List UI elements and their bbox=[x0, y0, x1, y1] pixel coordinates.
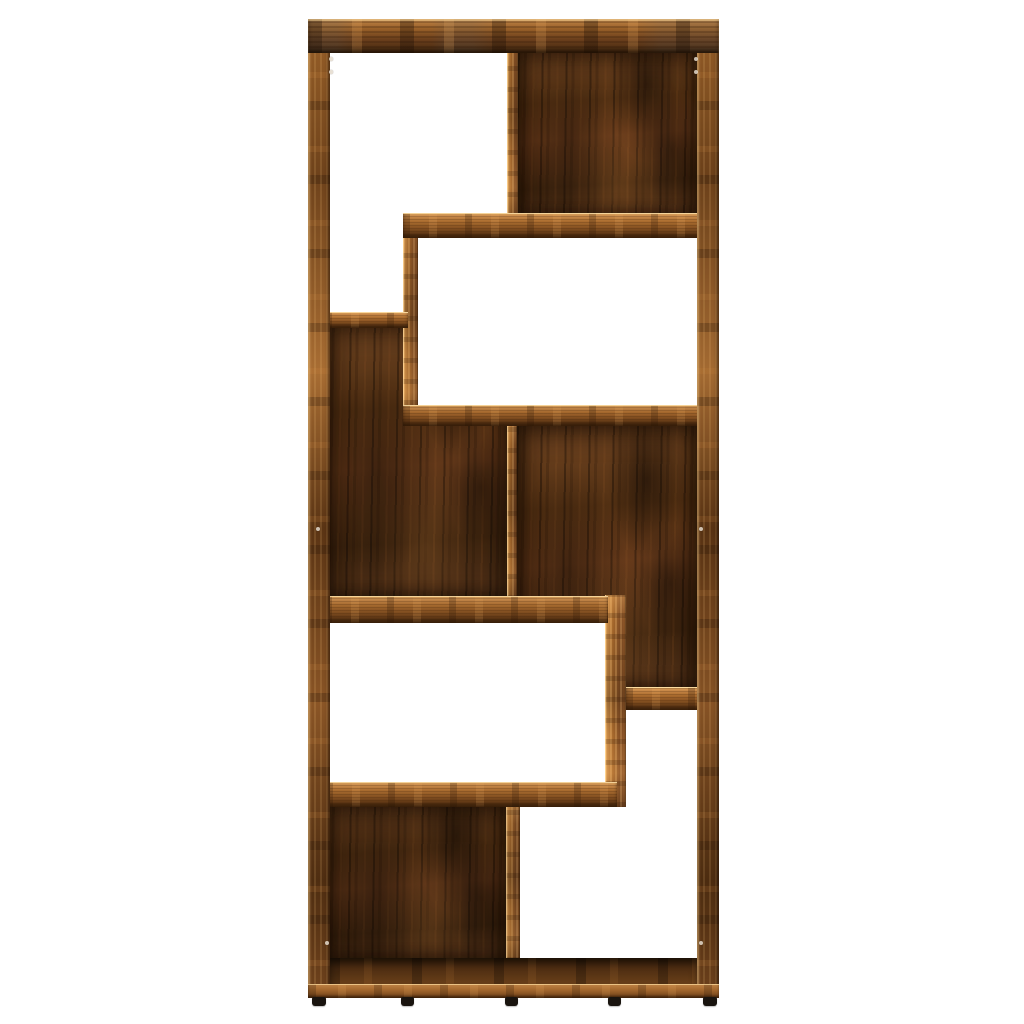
bottom-board-floor bbox=[330, 958, 697, 987]
fitting-dot-6 bbox=[699, 527, 703, 531]
shelf-upper bbox=[403, 213, 719, 238]
divider-right-step bbox=[605, 595, 626, 807]
frame-bottom-edge bbox=[308, 984, 719, 998]
shelf-lower bbox=[326, 782, 617, 807]
shelf-middle bbox=[325, 596, 608, 623]
back-panel-top-right bbox=[518, 46, 698, 218]
opening-below-middle-shelf bbox=[515, 623, 608, 700]
fitting-dot-4 bbox=[694, 70, 698, 74]
divider-bottom bbox=[506, 805, 520, 962]
product-photo bbox=[0, 0, 1024, 1024]
foot-5 bbox=[703, 997, 717, 1006]
frame-left-side bbox=[308, 19, 330, 998]
fitting-dot-5 bbox=[316, 527, 320, 531]
fitting-dot-1 bbox=[329, 57, 333, 61]
foot-4 bbox=[608, 997, 621, 1006]
fitting-dot-2 bbox=[329, 70, 333, 74]
shelf-middle-box-bottom bbox=[403, 405, 719, 426]
fitting-dot-7 bbox=[325, 941, 329, 945]
shelf-left-small bbox=[325, 312, 408, 328]
fitting-dot-8 bbox=[699, 941, 703, 945]
divider-middle bbox=[507, 424, 517, 600]
opening-middle-box-interior bbox=[416, 238, 702, 406]
divider-top bbox=[507, 27, 518, 218]
back-panel-bottom-left bbox=[326, 800, 507, 962]
foot-2 bbox=[401, 997, 414, 1006]
frame-right-side bbox=[697, 19, 719, 998]
frame-top-board bbox=[308, 19, 719, 53]
fitting-dot-3 bbox=[694, 57, 698, 61]
foot-1 bbox=[312, 997, 326, 1006]
foot-3 bbox=[505, 997, 518, 1006]
